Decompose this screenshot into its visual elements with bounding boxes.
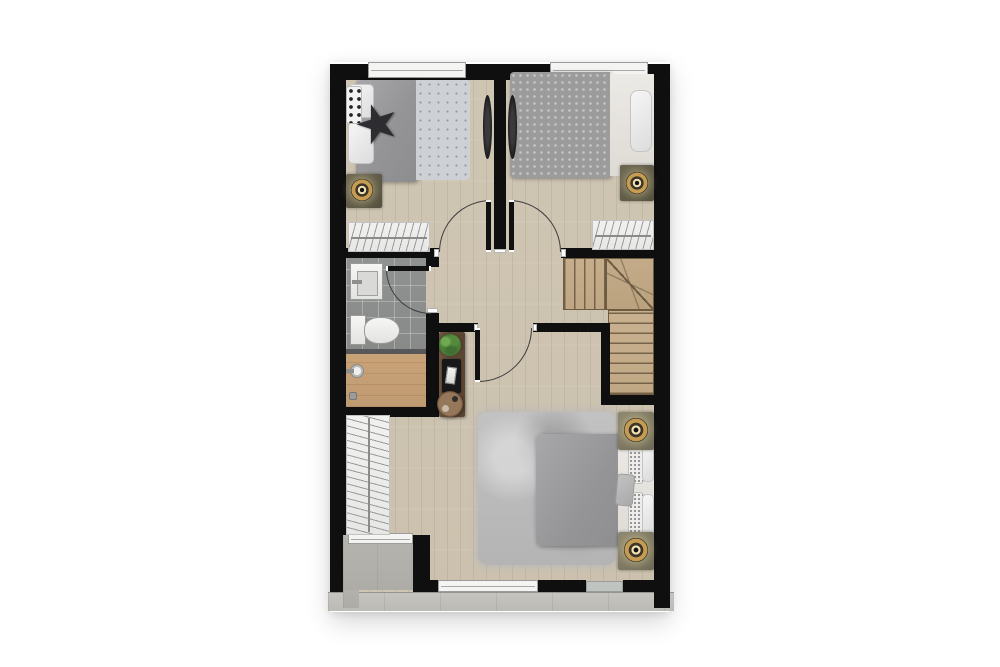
bed-right-headboard-cushion — [630, 90, 652, 152]
wall-bedroom-partition — [494, 64, 506, 253]
decor-tray — [442, 359, 461, 393]
jamb-master-right — [533, 324, 537, 331]
wall-bottom-seg1 — [423, 580, 438, 592]
master-wardrobe — [346, 415, 390, 535]
stairs-upper-flight — [563, 258, 606, 310]
small-plate — [441, 404, 450, 413]
door-leaf-bedroom-right — [509, 200, 514, 252]
door-leaf-master — [475, 328, 480, 382]
master-lamp-lower — [624, 538, 648, 562]
wall-right — [654, 64, 670, 608]
tv-bedroom-right — [508, 95, 517, 159]
door-leaf-bedroom-left — [486, 200, 491, 252]
wall-stairs-bottom — [601, 395, 670, 405]
window-master-bottom-small — [586, 581, 623, 592]
jamb-partition-cap — [494, 249, 506, 253]
wall-left-balcony — [330, 535, 343, 592]
master-lamp-upper — [624, 418, 648, 442]
magazine — [445, 366, 457, 384]
cup — [452, 396, 458, 402]
stairs-lower-flight — [608, 310, 654, 395]
window-master-bottom — [438, 580, 538, 592]
floor-plan-canvas: ★ — [0, 0, 1000, 667]
master-pillow-white-2 — [642, 494, 654, 536]
washbasin — [350, 263, 383, 300]
wall-master-door-right — [533, 323, 610, 332]
round-side-table — [437, 391, 463, 417]
potted-plant — [439, 334, 461, 356]
exterior-ledge — [328, 592, 674, 611]
shower-arm — [346, 369, 354, 373]
bed-right-duvet — [510, 72, 610, 178]
floor-plan: ★ — [330, 62, 670, 612]
stairs-winder-turn — [606, 258, 654, 310]
wall-left — [330, 64, 346, 535]
window-bedroom-left-top — [368, 62, 466, 78]
shower-deck — [346, 354, 426, 407]
door-leaf-bathroom — [386, 266, 431, 271]
floor-drain — [349, 392, 357, 400]
toilet-bowl — [364, 317, 400, 344]
washbasin-faucet — [352, 280, 362, 284]
wall-bottom-seg2 — [538, 580, 586, 592]
jamb-hall-right — [561, 249, 566, 257]
lamp-bedroom-left — [351, 179, 373, 201]
wall-bottom-seg3 — [623, 580, 670, 592]
lamp-bedroom-right — [626, 172, 648, 194]
wardrobe-bedroom-right — [592, 220, 654, 250]
wall-stairwell-left — [601, 323, 610, 403]
bed-left-quilt — [416, 80, 470, 180]
tv-bedroom-left — [483, 95, 492, 159]
master-accent-pillow — [615, 473, 636, 506]
wardrobe-bedroom-left — [348, 222, 430, 252]
wall-master-door-left — [433, 323, 478, 332]
